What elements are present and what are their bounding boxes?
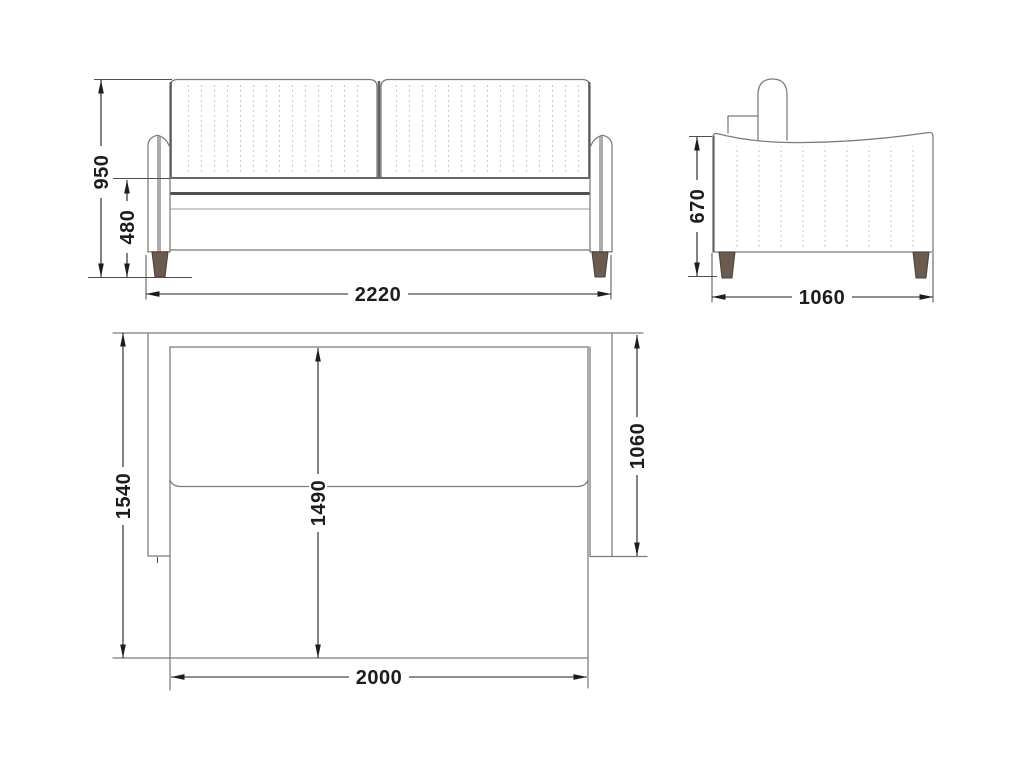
- front-right-leg: [592, 252, 608, 277]
- side-back-leg: [913, 252, 929, 278]
- front-right-armrest: [590, 135, 612, 252]
- side-front-leg: [719, 252, 735, 278]
- front-view: 950 480 2220: [88, 80, 612, 307]
- dim-front-base-height: 480: [117, 180, 139, 277]
- top-view: 1540 1490 1060 2000: [113, 333, 649, 690]
- dim-side-arm-height: 670: [687, 137, 709, 276]
- front-left-leg: [152, 252, 168, 277]
- dim-top-unfolded-depth: 1540: [113, 333, 135, 658]
- dim-label-480: 480: [117, 210, 139, 245]
- side-view: 670 1060: [687, 79, 933, 309]
- dim-front-overall-width: 2220: [146, 284, 611, 306]
- side-panel-stitching: [722, 146, 922, 248]
- front-left-cushion-stitching: [183, 85, 369, 173]
- front-left-armrest: [148, 135, 170, 252]
- dim-top-bed-length: 2000: [171, 667, 587, 689]
- sofa-technical-drawing-page: 950 480 2220 670: [0, 0, 1024, 768]
- dim-top-frame-depth: 1060: [627, 335, 649, 556]
- dim-label-950: 950: [91, 155, 113, 190]
- dim-label-2000: 2000: [356, 667, 403, 689]
- bed-fold-line: [170, 480, 588, 487]
- dim-label-1540: 1540: [113, 473, 135, 520]
- front-right-cushion-stitching: [394, 85, 582, 173]
- dim-side-depth: 1060: [712, 287, 933, 309]
- dim-label-2220: 2220: [355, 284, 402, 306]
- dim-top-bed-depth: 1490: [308, 348, 330, 658]
- dim-front-overall-height: 950: [91, 80, 113, 277]
- technical-drawing: 950 480 2220 670: [0, 0, 1024, 768]
- dim-label-1060-side: 1060: [799, 287, 846, 309]
- dim-label-1490: 1490: [308, 480, 330, 527]
- dim-label-1060-top: 1060: [627, 423, 649, 470]
- dim-label-670: 670: [687, 189, 709, 224]
- side-back-cushion: [758, 79, 787, 140]
- side-back-frame-step: [728, 116, 758, 133]
